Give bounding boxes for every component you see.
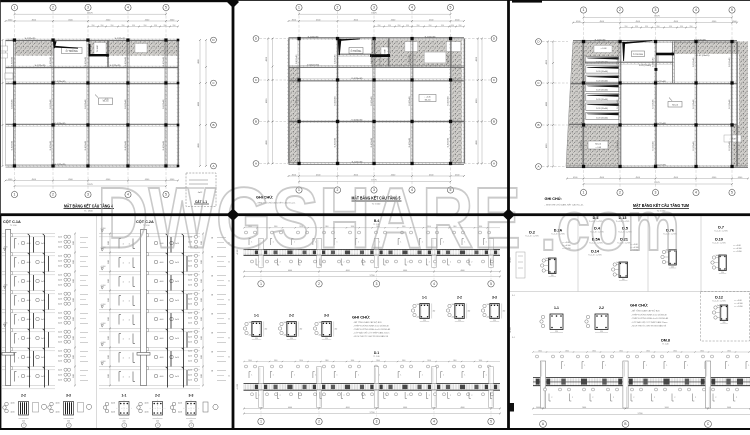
svg-text:D.3(20x40): D.3(20x40) xyxy=(617,99,619,109)
svg-text:D.4(20x40): D.4(20x40) xyxy=(447,54,449,64)
svg-text:3600: 3600 xyxy=(201,374,203,378)
svg-text:4ø16: 4ø16 xyxy=(58,279,62,281)
svg-text:- THÉP ĐƯỜNG KÍNH d<10 DÙNG AI: - THÉP ĐƯỜNG KÍNH d<10 DÙNG AI xyxy=(631,313,667,316)
svg-text:220: 220 xyxy=(67,420,70,422)
svg-text:4ø16: 4ø16 xyxy=(188,350,192,352)
svg-text:4ø16: 4ø16 xyxy=(160,376,164,378)
svg-text:1: 1 xyxy=(564,365,565,367)
svg-text:4000: 4000 xyxy=(476,140,478,144)
svg-text:↓ +5.45: ↓ +5.45 xyxy=(425,96,431,99)
svg-text:4ø16: 4ø16 xyxy=(27,376,31,378)
svg-text:1800: 1800 xyxy=(700,350,704,352)
svg-text:1: 1 xyxy=(486,375,487,377)
svg-text:1: 1 xyxy=(122,282,124,284)
svg-text:TL=1-20 ; L=7370: TL=1-20 ; L=7370 xyxy=(712,300,725,302)
svg-text:1: 1 xyxy=(128,282,130,284)
svg-text:1: 1 xyxy=(666,365,667,367)
svg-text:4ø16: 4ø16 xyxy=(175,357,179,359)
svg-text:D.3(20x40): D.3(20x40) xyxy=(693,99,695,109)
svg-text:+8.100: +8.100 xyxy=(237,384,239,390)
svg-text:1800: 1800 xyxy=(727,350,731,352)
svg-text:950: 950 xyxy=(388,25,391,27)
svg-text:3600: 3600 xyxy=(201,298,203,302)
svg-text:4ø16: 4ø16 xyxy=(58,355,62,357)
svg-text:2-2: 2-2 xyxy=(289,314,294,318)
svg-text:- KÍCH THƯỚC GHI TRONG BẢN VẼ: - KÍCH THƯỚC GHI TRONG BẢN VẼ xyxy=(631,325,667,328)
svg-text:950: 950 xyxy=(406,25,409,27)
svg-text:1: 1 xyxy=(122,358,124,360)
svg-text:+9.08: +9.08 xyxy=(737,300,742,302)
svg-text:4ø16: 4ø16 xyxy=(58,260,62,262)
svg-text:30: 30 xyxy=(228,319,230,321)
svg-text:950: 950 xyxy=(451,25,454,27)
svg-text:3600: 3600 xyxy=(73,355,75,359)
svg-text:1800: 1800 xyxy=(299,360,303,362)
svg-text:D.20 (15x40): D.20 (15x40) xyxy=(596,90,608,92)
svg-text:4ø16: 4ø16 xyxy=(58,293,62,295)
svg-text:5: 5 xyxy=(490,282,492,286)
svg-text:1-1: 1-1 xyxy=(422,296,427,300)
svg-text:220: 220 xyxy=(123,420,126,422)
svg-text:S-1(22x45): S-1(22x45) xyxy=(25,38,36,40)
svg-text:4ø16: 4ø16 xyxy=(188,317,192,319)
svg-text:16575: 16575 xyxy=(654,182,660,184)
svg-text:DWGSHARE: DWGSHARE xyxy=(97,171,521,267)
svg-text:950: 950 xyxy=(122,25,125,27)
svg-text:220: 220 xyxy=(22,420,25,422)
svg-text:Sê-nô: Sê-nô xyxy=(672,105,679,107)
svg-text:4000: 4000 xyxy=(346,270,350,272)
svg-text:4ø16: 4ø16 xyxy=(27,357,31,359)
svg-text:1: 1 xyxy=(122,301,124,303)
svg-text:220: 220 xyxy=(721,272,724,274)
svg-text:2-2: 2-2 xyxy=(599,306,604,310)
svg-text:1800: 1800 xyxy=(619,350,623,352)
svg-text:2: 2 xyxy=(633,397,634,399)
svg-text:+1.050: +1.050 xyxy=(737,306,743,308)
svg-text:1800: 1800 xyxy=(274,360,278,362)
svg-text:+4.100: +4.100 xyxy=(737,303,743,305)
svg-text:950: 950 xyxy=(645,26,648,28)
svg-text:950: 950 xyxy=(92,25,95,27)
svg-text:220: 220 xyxy=(290,338,293,340)
svg-text:4000: 4000 xyxy=(288,270,292,272)
svg-text:30: 30 xyxy=(228,338,230,340)
svg-text:4ø16: 4ø16 xyxy=(144,403,148,405)
svg-text:4ø16: 4ø16 xyxy=(188,284,192,286)
svg-text:- LỚP BẢO VỆ CỐT THÉP DẦM 25mm: - LỚP BẢO VỆ CỐT THÉP DẦM 25mm xyxy=(631,321,668,324)
svg-text:2: 2 xyxy=(280,395,281,397)
svg-text:5: 5 xyxy=(450,6,452,10)
svg-text:950: 950 xyxy=(398,25,401,27)
svg-text:950: 950 xyxy=(164,25,167,27)
svg-text:2: 2 xyxy=(613,397,614,399)
svg-text:3600: 3600 xyxy=(201,336,203,340)
svg-text:4: 4 xyxy=(411,6,413,10)
svg-text:3B: 3B xyxy=(211,295,214,297)
svg-text:3600: 3600 xyxy=(73,374,75,378)
svg-text:4ø16: 4ø16 xyxy=(58,317,62,319)
svg-text:1-1: 1-1 xyxy=(122,393,127,397)
svg-text:4: 4 xyxy=(695,8,697,12)
svg-text:D.1h(22x45): D.1h(22x45) xyxy=(654,81,666,83)
svg-text:2: 2 xyxy=(301,395,302,397)
svg-text:4ø16: 4ø16 xyxy=(58,255,62,257)
svg-text:4000: 4000 xyxy=(288,407,292,409)
svg-text:950: 950 xyxy=(459,25,462,27)
svg-text:1: 1 xyxy=(358,375,359,377)
svg-text:4ø16: 4ø16 xyxy=(58,322,62,324)
svg-text:1: 1 xyxy=(14,6,16,10)
svg-text:5000: 5000 xyxy=(536,407,540,409)
svg-text:D.4(20x40): D.4(20x40) xyxy=(409,96,411,106)
svg-text:1: 1 xyxy=(400,375,401,377)
svg-text:1: 1 xyxy=(379,375,380,377)
svg-text:5000: 5000 xyxy=(665,407,669,409)
svg-text:J-I: J-I xyxy=(512,337,515,339)
svg-text:950: 950 xyxy=(417,25,420,27)
svg-text:5: 5 xyxy=(165,6,167,10)
svg-text:+8.10: +8.10 xyxy=(3,246,7,248)
svg-text:4ø16: 4ø16 xyxy=(58,331,62,333)
svg-text:1: 1 xyxy=(18,301,20,303)
svg-text:4000: 4000 xyxy=(546,102,548,106)
svg-text:3600: 3600 xyxy=(73,260,75,264)
svg-text:1800: 1800 xyxy=(538,350,542,352)
svg-text:4ø16: 4ø16 xyxy=(58,336,62,338)
svg-text:D.4(20x40): D.4(20x40) xyxy=(163,140,165,150)
svg-text:TH MAY: TH MAY xyxy=(96,44,99,52)
svg-text:3ø16: 3ø16 xyxy=(717,305,721,307)
svg-text:4ø16: 4ø16 xyxy=(188,274,192,276)
svg-text:S-1(22x45): S-1(22x45) xyxy=(55,164,66,166)
svg-text:D.10(20x45): D.10(20x45) xyxy=(694,40,706,42)
svg-text:1: 1 xyxy=(18,358,20,360)
svg-text:3: 3 xyxy=(87,193,89,197)
svg-text:4ø16: 4ø16 xyxy=(58,360,62,362)
svg-text:3ø16: 3ø16 xyxy=(716,255,720,257)
svg-text:- THÉP ĐƯỜNG KÍNH d>=10 DÙNG A: - THÉP ĐƯỜNG KÍNH d>=10 DÙNG AII xyxy=(353,328,391,331)
svg-text:D.3(20x40): D.3(20x40) xyxy=(617,141,619,151)
svg-text:3600: 3600 xyxy=(73,279,75,283)
svg-text:3B: 3B xyxy=(211,352,214,354)
svg-text:2: 2 xyxy=(318,282,320,286)
svg-text:1: 1 xyxy=(315,375,316,377)
svg-text:1: 1 xyxy=(18,263,20,265)
svg-text:D.6(20x40): D.6(20x40) xyxy=(352,78,363,80)
svg-text:4000: 4000 xyxy=(403,407,407,409)
svg-text:2: 2 xyxy=(715,397,716,399)
svg-text:1800: 1800 xyxy=(592,350,596,352)
svg-text:4ø16: 4ø16 xyxy=(160,281,164,283)
svg-text:2: 2 xyxy=(318,420,320,424)
svg-text:30: 30 xyxy=(228,281,230,283)
svg-text:5: 5 xyxy=(731,191,733,195)
svg-text:1: 1 xyxy=(128,339,130,341)
svg-text:30: 30 xyxy=(228,357,230,359)
svg-text:D.12: D.12 xyxy=(715,296,723,300)
svg-text:3600: 3600 xyxy=(73,298,75,302)
svg-text:5000: 5000 xyxy=(582,407,586,409)
svg-text:3600: 3600 xyxy=(108,336,110,340)
svg-text:Sê-nô: Sê-nô xyxy=(595,144,602,146)
svg-text:D.3(20x40): D.3(20x40) xyxy=(580,57,582,67)
svg-text:D.6(20x40): D.6(20x40) xyxy=(352,120,363,122)
svg-text:1: 1 xyxy=(422,375,423,377)
svg-text:2: 2 xyxy=(450,395,451,397)
svg-text:D.3(20x40): D.3(20x40) xyxy=(693,141,695,151)
svg-text:TL=1-20 ; L=7370: TL=1-20 ; L=7370 xyxy=(712,242,725,244)
svg-text:3600: 3600 xyxy=(73,336,75,340)
svg-text:4000: 4000 xyxy=(346,407,350,409)
svg-text:3600: 3600 xyxy=(201,279,203,283)
svg-text:- THÉP ĐƯỜNG KÍNH d<10 DÙNG AI: - THÉP ĐƯỜNG KÍNH d<10 DÙNG AI xyxy=(353,325,389,328)
svg-text:D.4(20x40): D.4(20x40) xyxy=(85,56,87,66)
svg-text:2: 2 xyxy=(674,397,675,399)
svg-text:2ø16: 2ø16 xyxy=(452,304,456,306)
svg-text:2: 2 xyxy=(52,6,54,10)
svg-text:3-3: 3-3 xyxy=(66,393,71,397)
svg-text:4000: 4000 xyxy=(198,59,200,63)
svg-text:+1.050: +1.050 xyxy=(736,251,742,253)
svg-text:D.4(20x40): D.4(20x40) xyxy=(296,96,298,106)
svg-text:4000: 4000 xyxy=(476,99,478,103)
svg-text:4000: 4000 xyxy=(266,57,268,61)
svg-text:D.3(20x40): D.3(20x40) xyxy=(652,99,654,109)
svg-text:S-1(22x45): S-1(22x45) xyxy=(35,65,46,67)
svg-text:1: 1 xyxy=(337,375,338,377)
svg-text:D.4(20x40): D.4(20x40) xyxy=(296,137,298,147)
svg-text:4000: 4000 xyxy=(461,407,465,409)
svg-text:2: 2 xyxy=(695,397,696,399)
svg-text:+8.100: +8.100 xyxy=(101,361,106,363)
svg-text:D.6(20x40): D.6(20x40) xyxy=(55,81,66,83)
svg-text:1: 1 xyxy=(122,320,124,322)
svg-text:4ø16: 4ø16 xyxy=(58,246,62,248)
svg-text:4ø16: 4ø16 xyxy=(188,336,192,338)
svg-text:4ø16: 4ø16 xyxy=(175,376,179,378)
svg-text:A: A xyxy=(537,165,539,169)
svg-text:S-1(22x45): S-1(22x45) xyxy=(352,162,363,164)
svg-text:Ô TRỐNG: Ô TRỐNG xyxy=(633,53,643,56)
svg-text:Ô TRỐNG: Ô TRỐNG xyxy=(351,50,362,53)
svg-text:+4.100: +4.100 xyxy=(510,327,512,333)
svg-text:D.4(20x40): D.4(20x40) xyxy=(163,56,165,66)
svg-text:4000: 4000 xyxy=(461,270,465,272)
svg-text:1800: 1800 xyxy=(453,360,457,362)
svg-text:A: A xyxy=(493,162,495,166)
svg-text:450: 450 xyxy=(467,311,470,313)
svg-text:D.4(20x40): D.4(20x40) xyxy=(125,56,127,66)
svg-text:4ø16: 4ø16 xyxy=(27,262,31,264)
svg-text:220: 220 xyxy=(622,279,625,281)
svg-text:4000: 4000 xyxy=(198,143,200,147)
svg-text:J-I: J-I xyxy=(512,295,515,297)
svg-text:4ø16: 4ø16 xyxy=(58,369,62,371)
svg-text:4000: 4000 xyxy=(546,60,548,64)
svg-text:D.4(20x40): D.4(20x40) xyxy=(334,54,336,64)
svg-text:2ø16: 2ø16 xyxy=(452,316,456,318)
svg-text:4ø16: 4ø16 xyxy=(188,341,192,343)
svg-text:17150: 17150 xyxy=(370,275,375,277)
svg-text:2ø16: 2ø16 xyxy=(249,322,253,324)
svg-text:220: 220 xyxy=(255,338,258,340)
svg-text:1: 1 xyxy=(687,365,688,367)
svg-text:950: 950 xyxy=(101,25,104,27)
svg-text:D.4(20x40): D.4(20x40) xyxy=(334,96,336,106)
svg-text:+8.100: +8.100 xyxy=(101,304,106,306)
svg-text:TL=1-20 ; L=7370: TL=1-20 ; L=7370 xyxy=(714,230,727,232)
svg-text:2-2: 2-2 xyxy=(155,393,160,397)
svg-text:2: 2 xyxy=(365,395,366,397)
svg-text:950: 950 xyxy=(132,25,135,27)
svg-text:1800: 1800 xyxy=(427,360,431,362)
svg-text:+9.08: +9.08 xyxy=(736,245,741,247)
svg-text:4ø16: 4ø16 xyxy=(10,412,14,414)
svg-text:1: 1 xyxy=(748,365,749,367)
svg-text:3-3: 3-3 xyxy=(492,296,497,300)
svg-text:30: 30 xyxy=(228,376,230,378)
svg-text:3-3: 3-3 xyxy=(324,314,329,318)
svg-text:4ø16: 4ø16 xyxy=(27,319,31,321)
svg-text:1: 1 xyxy=(273,375,274,377)
svg-text:1: 1 xyxy=(128,377,130,379)
svg-text:950: 950 xyxy=(635,26,638,28)
svg-text:2ø16: 2ø16 xyxy=(487,304,491,306)
svg-text:3600: 3600 xyxy=(73,241,75,245)
svg-text:4ø16: 4ø16 xyxy=(111,412,115,414)
svg-text:D.4(20x40): D.4(20x40) xyxy=(296,54,298,64)
svg-text:4000: 4000 xyxy=(198,102,200,106)
svg-text:1: 1 xyxy=(128,358,130,360)
svg-text:D.3(20x40): D.3(20x40) xyxy=(693,57,695,67)
svg-text:950: 950 xyxy=(154,25,157,27)
svg-text:4ø16: 4ø16 xyxy=(58,298,62,300)
svg-text:1: 1 xyxy=(128,301,130,303)
svg-text:TL 1-30: TL 1-30 xyxy=(373,356,379,358)
svg-text:950: 950 xyxy=(111,25,114,27)
svg-text:4ø16: 4ø16 xyxy=(27,338,31,340)
svg-text:.com: .com xyxy=(540,187,680,265)
svg-text:3-3: 3-3 xyxy=(189,393,194,397)
svg-text:D.4(20x40): D.4(20x40) xyxy=(85,140,87,150)
svg-text:16575: 16575 xyxy=(654,16,660,18)
svg-text:220: 220 xyxy=(325,338,328,340)
svg-text:2-2: 2-2 xyxy=(457,296,462,300)
svg-text:D.3(20x40): D.3(20x40) xyxy=(729,141,731,151)
svg-text:4000: 4000 xyxy=(476,57,478,61)
svg-text:DM.8: DM.8 xyxy=(661,339,670,343)
svg-text:4ø16: 4ø16 xyxy=(188,303,192,305)
svg-text:- BÊ TÔNG DẦM CẤP ĐỘ B20: - BÊ TÔNG DẦM CẤP ĐỘ B20 xyxy=(631,310,660,313)
svg-text:D.4(20x40): D.4(20x40) xyxy=(50,56,52,66)
svg-text:+8.100: +8.100 xyxy=(101,285,106,287)
svg-text:1800: 1800 xyxy=(325,360,329,362)
svg-text:S-1(22x45): S-1(22x45) xyxy=(308,37,319,39)
svg-text:220: 220 xyxy=(156,420,159,422)
svg-text:2: 2 xyxy=(322,395,323,397)
svg-text:4ø16: 4ø16 xyxy=(58,236,62,238)
svg-text:4ø16: 4ø16 xyxy=(188,355,192,357)
svg-text:1800: 1800 xyxy=(565,350,569,352)
svg-text:1: 1 xyxy=(18,244,20,246)
svg-text:GHI CHÚ:: GHI CHÚ: xyxy=(352,315,370,320)
svg-text:D.4(20x40): D.4(20x40) xyxy=(50,99,52,109)
svg-text:3B: 3B xyxy=(211,333,214,335)
svg-text:4: 4 xyxy=(433,282,435,286)
svg-text:3600: 3600 xyxy=(73,317,75,321)
svg-text:1: 1 xyxy=(260,420,262,424)
svg-text:D.3(20x40): D.3(20x40) xyxy=(580,141,582,151)
svg-text:950: 950 xyxy=(690,26,693,28)
svg-text:4ø16: 4ø16 xyxy=(27,281,31,283)
svg-text:1800: 1800 xyxy=(351,360,355,362)
svg-text:B: B xyxy=(537,123,539,127)
svg-text:220: 220 xyxy=(551,275,554,277)
svg-text:220: 220 xyxy=(671,266,674,268)
svg-text:CỘT C.1A: CỘT C.1A xyxy=(3,219,21,224)
svg-text:1: 1 xyxy=(298,6,300,10)
svg-text:2-2: 2-2 xyxy=(21,393,26,397)
svg-text:950: 950 xyxy=(680,26,683,28)
svg-text:4ø16: 4ø16 xyxy=(58,350,62,352)
svg-text:950: 950 xyxy=(378,25,381,27)
svg-text:450: 450 xyxy=(299,329,302,331)
svg-text:950: 950 xyxy=(441,25,444,27)
svg-text:D.6(20x40): D.6(20x40) xyxy=(55,123,66,125)
svg-text:D.4(20x40): D.4(20x40) xyxy=(50,140,52,150)
svg-text:4ø16: 4ø16 xyxy=(178,403,182,405)
svg-text:950: 950 xyxy=(173,25,176,27)
svg-text:3600: 3600 xyxy=(108,279,110,283)
svg-text:2ø16: 2ø16 xyxy=(249,334,253,336)
svg-text:16575: 16575 xyxy=(371,12,377,14)
svg-text:2: 2 xyxy=(736,397,737,399)
svg-text:3600: 3600 xyxy=(108,317,110,321)
svg-text:4ø16: 4ø16 xyxy=(175,300,179,302)
svg-text:D.1k(22x45): D.1k(22x45) xyxy=(654,165,666,167)
svg-text:S-1(22x45): S-1(22x45) xyxy=(425,37,436,39)
svg-text:↓ +9.08: ↓ +9.08 xyxy=(600,47,608,50)
svg-text:B: B xyxy=(493,120,495,124)
svg-text:D.1A(22x35): D.1A(22x35) xyxy=(307,64,320,67)
svg-text:D.2: D.2 xyxy=(529,231,535,235)
svg-text:D.4(20x40): D.4(20x40) xyxy=(11,99,13,109)
svg-text:220: 220 xyxy=(190,420,193,422)
svg-text:4ø16: 4ø16 xyxy=(58,379,62,381)
svg-text:4ø16: 4ø16 xyxy=(160,357,164,359)
svg-text:2: 2 xyxy=(493,395,494,397)
svg-text:17150: 17150 xyxy=(370,412,375,414)
svg-text:2: 2 xyxy=(654,397,655,399)
svg-text:4000: 4000 xyxy=(266,99,268,103)
svg-text:2: 2 xyxy=(471,395,472,397)
svg-text:S-1(22x45): S-1(22x45) xyxy=(110,65,121,67)
svg-text:4: 4 xyxy=(695,191,697,195)
svg-text:+8.10: +8.10 xyxy=(3,322,7,324)
svg-text:4000: 4000 xyxy=(266,140,268,144)
svg-text:A: A xyxy=(255,162,257,166)
svg-text:D.4(20x40): D.4(20x40) xyxy=(447,96,449,106)
svg-text:1: 1 xyxy=(122,377,124,379)
svg-text:S-1(22x45): S-1(22x45) xyxy=(115,38,126,40)
svg-text:4ø16: 4ø16 xyxy=(58,341,62,343)
svg-text:4ø16: 4ø16 xyxy=(55,412,59,414)
svg-text:30: 30 xyxy=(228,300,230,302)
svg-text:4ø16: 4ø16 xyxy=(175,319,179,321)
svg-text:1: 1 xyxy=(464,375,465,377)
svg-text:2: 2 xyxy=(592,397,593,399)
